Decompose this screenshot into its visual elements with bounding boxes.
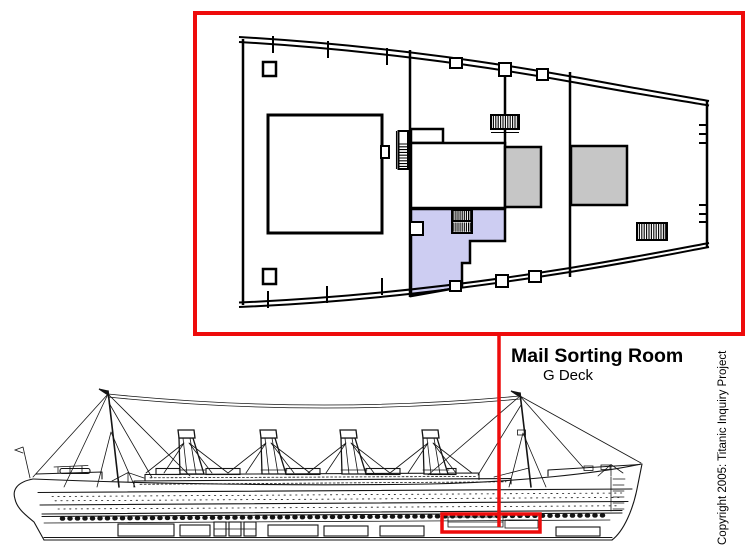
- funnel-2: [308, 430, 390, 474]
- copyright-notice: Copyright 2005: Titanic Inquiry Project: [717, 333, 731, 545]
- funnel-4: [146, 430, 228, 474]
- funnel-3: [228, 430, 310, 474]
- deck-label: G Deck: [543, 367, 593, 384]
- deck-plan: [239, 36, 709, 308]
- wireless-aerial: [108, 394, 520, 408]
- plan-gray-blocks: [505, 146, 627, 207]
- room-title-label: Mail Sorting Room: [511, 345, 683, 368]
- funnel-1: [390, 430, 472, 474]
- ship-profile: [14, 389, 642, 540]
- titanic-mail-room-diagram: [0, 0, 750, 550]
- diagram-canvas: Mail Sorting Room G Deck Copyright 2005:…: [0, 0, 750, 550]
- aft-mast: [33, 389, 190, 487]
